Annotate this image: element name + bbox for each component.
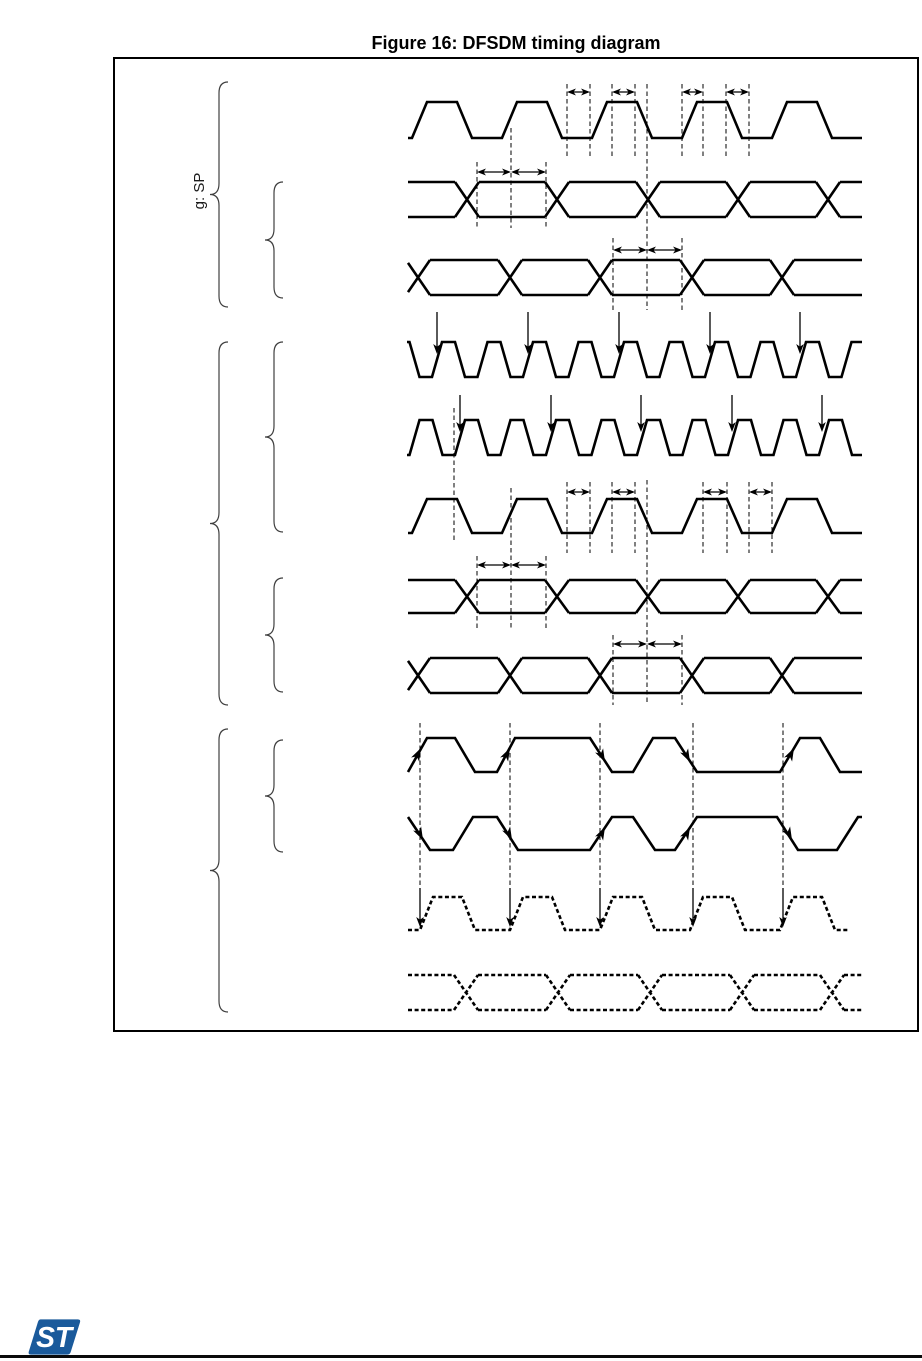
edge-marker-arrow-ne (500, 746, 514, 762)
datasheet-page: Figure 16: DFSDM timing diagram g: SP ST (0, 0, 922, 1361)
waveform-manchester-1 (408, 738, 862, 772)
waveform-data-4 (408, 658, 862, 693)
waveform-recovered-clock (408, 897, 848, 930)
brace-group-3-sub (265, 740, 283, 852)
timing-diagram-figure: g: SP (0, 0, 922, 1361)
brace-group-2-sub-b (265, 578, 283, 692)
group-rotated-label: g: SP (191, 173, 208, 210)
waveform-data-3 (408, 580, 862, 613)
waveform-fast-clock-2 (407, 420, 862, 455)
figure-frame (114, 58, 918, 1031)
brace-group-1-sub (265, 182, 283, 298)
waveform-manchester-2 (408, 817, 862, 850)
waveform-data-2 (408, 260, 862, 295)
waveform-data-1 (408, 182, 862, 217)
st-logo-text: ST (36, 1321, 75, 1353)
st-logo: ST (28, 1317, 81, 1357)
waveform-recovered-data (408, 975, 862, 1010)
edge-marker-arrow-ne (411, 746, 425, 762)
footer-rule (0, 1355, 922, 1358)
brace-group-2 (210, 342, 228, 705)
waveform-fast-clock-1 (407, 342, 862, 377)
brace-group-2-sub-a (265, 342, 283, 532)
brace-group-1 (210, 82, 228, 307)
brace-group-3 (210, 729, 228, 1012)
